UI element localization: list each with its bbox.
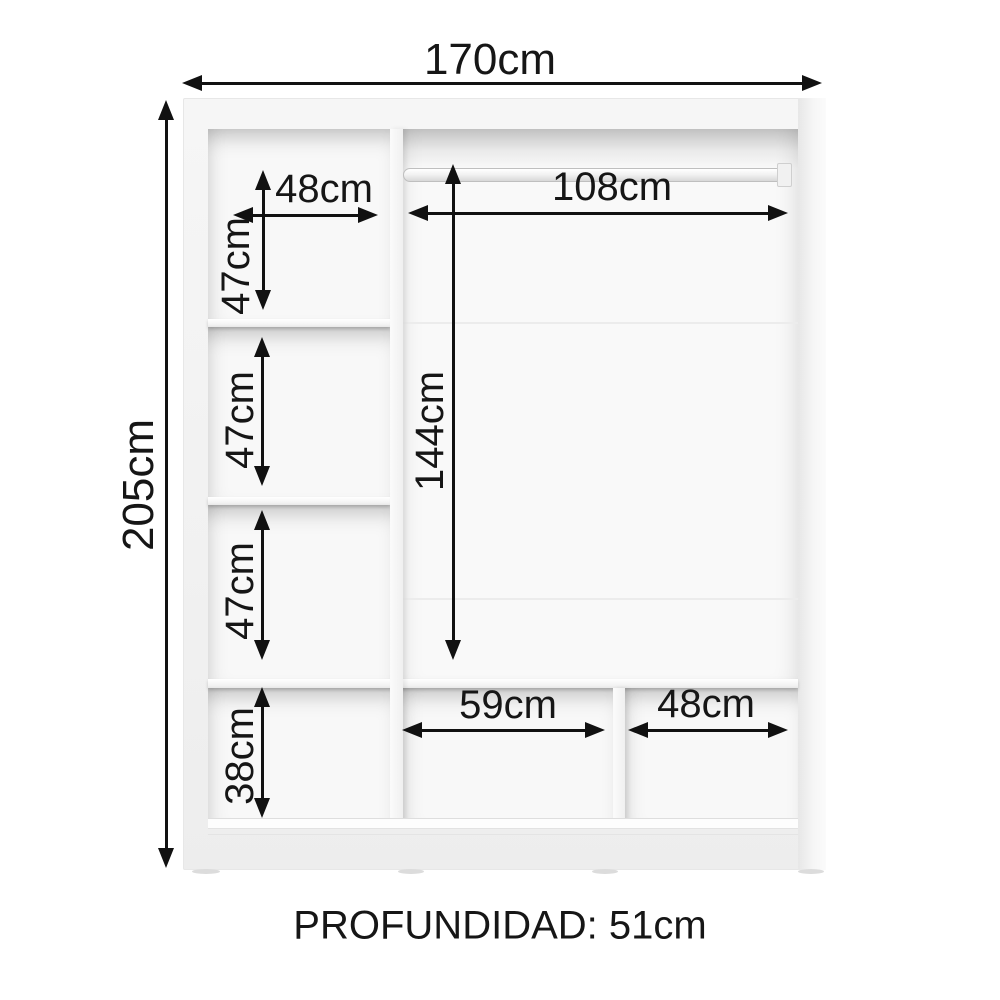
arrowhead-down [254,640,270,660]
foot-shadow-1 [192,869,220,874]
back-panel-seam-1 [403,322,798,324]
arrow-line [262,176,265,304]
plinth-edge [208,834,798,835]
shelf-2 [208,497,390,505]
shelf-1 [208,319,390,327]
arrow-line [634,729,782,732]
arrow-line [414,212,782,215]
foot-shadow-2 [398,869,424,874]
arrowhead-right [585,722,605,738]
arrow-line [165,106,168,862]
vertical-divider-bottom [613,688,625,823]
dim-label-cubby3-height: 47cm [220,542,260,640]
arrowhead-right [802,75,822,91]
hanging-section-top-shadow [403,129,798,169]
arrowhead-down [158,848,174,868]
dim-label-total-width: 170cm [424,38,556,82]
depth-note: PROFUNDIDAD: 51cm [293,904,706,949]
cabinet-floor [208,818,798,829]
foot-shadow-4 [798,869,824,874]
foot-shadow-3 [592,869,618,874]
dim-label-rod-width: 108cm [552,167,672,207]
wardrobe-dimension-diagram: 170cm 205cm 48cm 47cm 47cm 47cm 38cm 108… [0,0,1000,1000]
rod-bracket [777,163,792,187]
dim-label-total-height: 205cm [117,419,161,551]
dim-label-hanging-height: 144cm [410,371,450,491]
back-panel-seam-2 [403,598,798,600]
vertical-divider-left [390,129,403,823]
arrow-line [408,729,599,732]
dim-label-cubby2-height: 47cm [220,371,260,469]
arrowhead-right [768,722,788,738]
dim-label-bottom-middle-width: 59cm [459,685,557,725]
arrowhead-down [254,466,270,486]
dim-label-left-shelf-width: 48cm [275,169,373,209]
arrowhead-down [445,640,461,660]
arrowhead-right [768,205,788,221]
cabinet-right-side-panel [798,98,826,870]
dim-label-bottom-right-width: 48cm [657,684,755,724]
dim-label-bottom-left-height: 38cm [220,707,260,805]
dim-label-cubby1-height: 47cm [216,217,256,315]
